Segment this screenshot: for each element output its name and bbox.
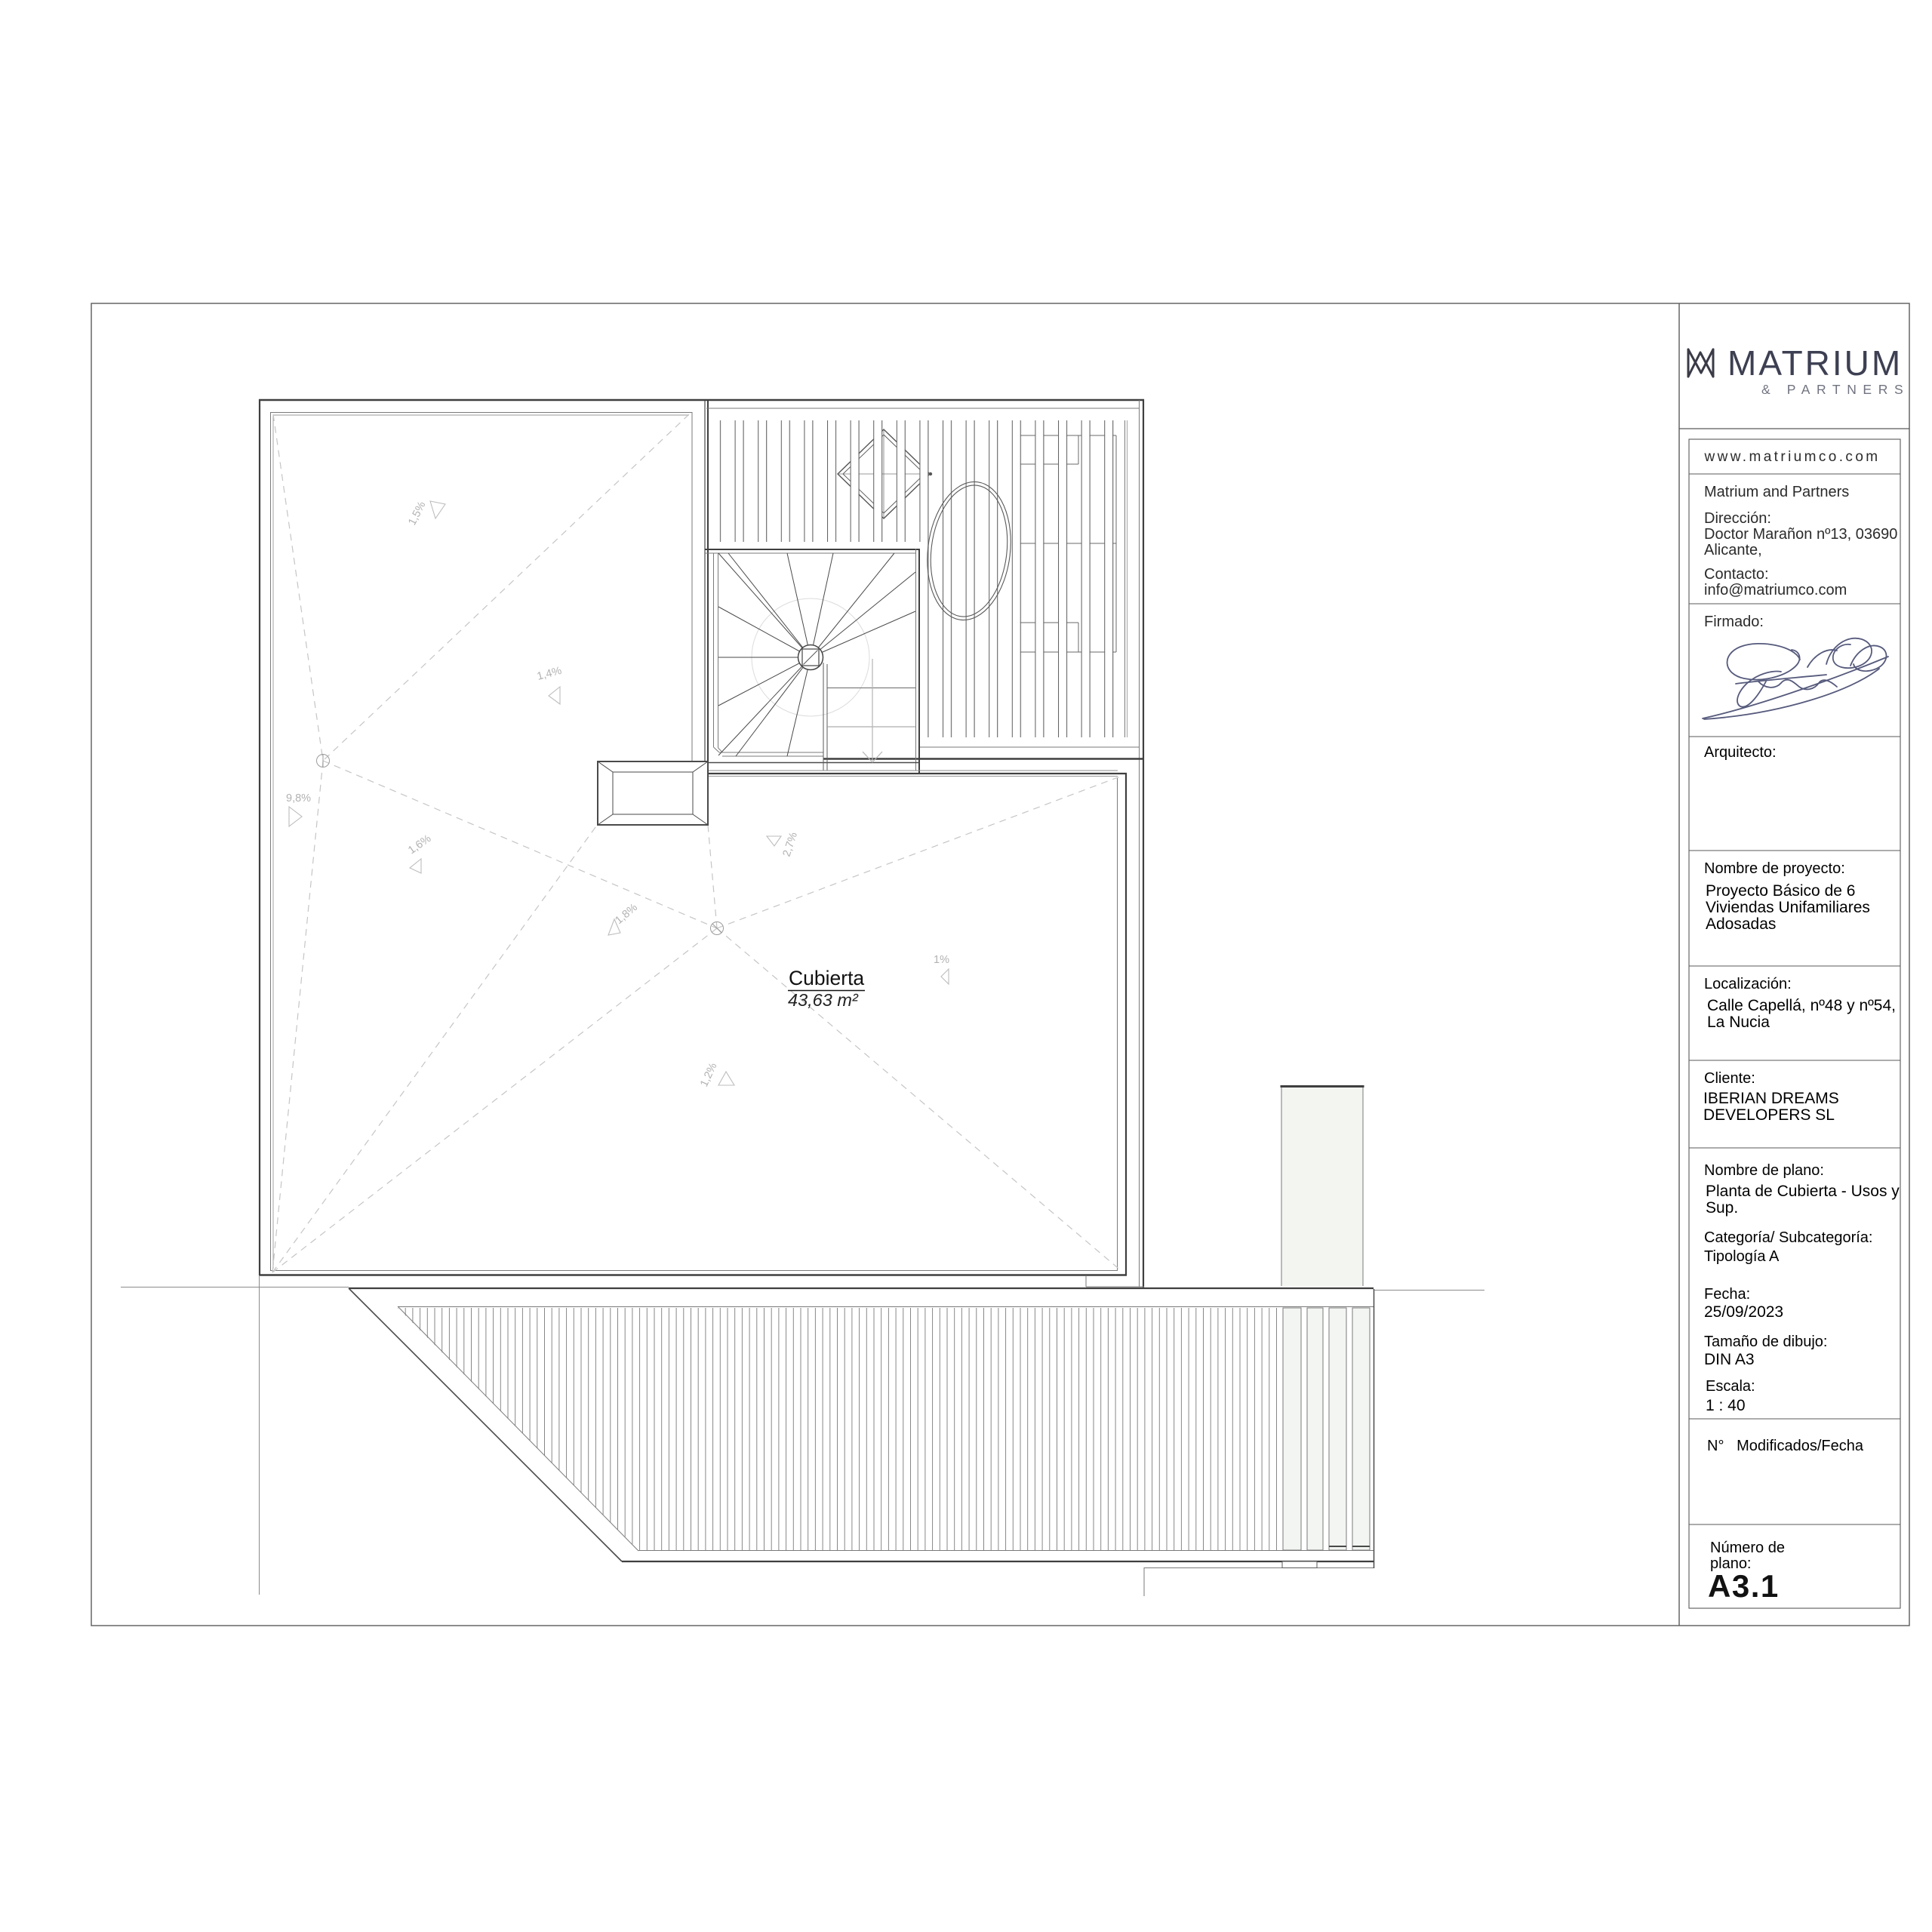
svg-text:Sup.: Sup. [1706, 1199, 1738, 1217]
svg-text:Proyecto Básico de 6: Proyecto Básico de 6 [1706, 882, 1855, 900]
svg-text:Fecha:: Fecha: [1704, 1286, 1750, 1303]
svg-text:1 : 40: 1 : 40 [1706, 1397, 1746, 1414]
svg-text:Localización:: Localización: [1704, 976, 1792, 992]
svg-text:MATRIUM: MATRIUM [1727, 343, 1903, 383]
svg-text:& PARTNERS: & PARTNERS [1761, 382, 1909, 397]
svg-text:Tipología A: Tipología A [1704, 1248, 1780, 1265]
svg-text:Dirección:: Dirección: [1704, 510, 1771, 527]
svg-text:Viviendas Unifamiliares: Viviendas Unifamiliares [1706, 899, 1870, 916]
svg-text:IBERIAN DREAMS: IBERIAN DREAMS [1703, 1090, 1839, 1107]
svg-text:Tamaño de dibujo:: Tamaño de dibujo: [1704, 1334, 1827, 1350]
svg-text:Categoría/ Subcategoría:: Categoría/ Subcategoría: [1704, 1229, 1872, 1246]
svg-text:DEVELOPERS SL: DEVELOPERS SL [1703, 1106, 1835, 1124]
svg-text:www.matriumco.com: www.matriumco.com [1703, 449, 1880, 465]
svg-text:Doctor Marañon nº13, 03690: Doctor Marañon nº13, 03690 [1704, 526, 1897, 543]
svg-text:9,8%: 9,8% [286, 792, 311, 804]
svg-text:A3.1: A3.1 [1708, 1568, 1780, 1604]
svg-text:Escala:: Escala: [1706, 1378, 1755, 1395]
svg-text:N° Modificados/Fecha: N° Modificados/Fecha [1707, 1438, 1864, 1454]
svg-text:43,63 m²: 43,63 m² [788, 990, 859, 1010]
svg-text:Contacto:: Contacto: [1704, 566, 1769, 583]
svg-text:DIN A3: DIN A3 [1704, 1351, 1755, 1368]
svg-text:Cubierta: Cubierta [789, 967, 864, 989]
svg-text:25/09/2023: 25/09/2023 [1704, 1303, 1783, 1321]
svg-text:Nombre de proyecto:: Nombre de proyecto: [1704, 860, 1845, 877]
svg-text:La Nucia: La Nucia [1707, 1014, 1770, 1031]
svg-text:Arquitecto:: Arquitecto: [1704, 744, 1777, 761]
svg-text:Número de: Número de [1710, 1540, 1785, 1556]
svg-text:Nombre de plano:: Nombre de plano: [1704, 1162, 1824, 1179]
svg-text:Firmado:: Firmado: [1704, 614, 1764, 630]
svg-text:Cliente:: Cliente: [1704, 1070, 1755, 1087]
svg-text:Matrium and Partners: Matrium and Partners [1704, 484, 1849, 500]
svg-text:Calle Capellá, nº48 y nº54,: Calle Capellá, nº48 y nº54, [1707, 997, 1896, 1014]
svg-text:1%: 1% [934, 954, 949, 966]
svg-text:Planta de Cubierta - Usos y: Planta de Cubierta - Usos y [1706, 1183, 1900, 1200]
svg-text:info@matriumco.com: info@matriumco.com [1704, 582, 1847, 598]
svg-text:Adosadas: Adosadas [1706, 915, 1776, 933]
svg-text:Alicante,: Alicante, [1704, 542, 1762, 558]
